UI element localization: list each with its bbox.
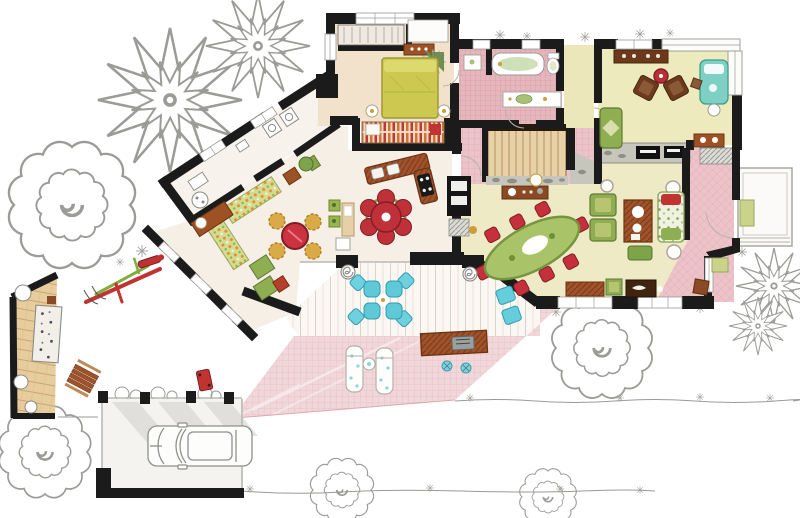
toy-plane [134, 249, 167, 274]
pedestal-table [667, 245, 681, 259]
poinsettia-tree [206, 0, 310, 98]
cloud-tree [9, 142, 135, 268]
garage [96, 391, 258, 498]
patio-table [386, 303, 402, 319]
toy-cart [196, 369, 213, 391]
planter [25, 401, 37, 413]
gold-chair [305, 243, 321, 259]
cloud-tree [0, 406, 91, 497]
toilet [547, 53, 559, 74]
patio-table [364, 303, 380, 319]
deck-bench [32, 305, 62, 363]
round-table [192, 192, 208, 208]
ground-line [242, 490, 655, 493]
pedestal-table [530, 174, 542, 186]
green-throw [661, 228, 681, 240]
gold-chair [269, 213, 285, 229]
car [148, 423, 252, 469]
cabinet [336, 238, 350, 250]
deck-box [47, 296, 56, 304]
bed [382, 58, 438, 118]
green-armchair [590, 219, 616, 241]
entry-porch [738, 168, 792, 246]
vanity [503, 92, 561, 107]
floral-sofa [658, 192, 684, 242]
side-table [708, 104, 720, 116]
cloud-tree [520, 469, 577, 518]
patio-table [386, 281, 402, 297]
alcove-shelf [408, 20, 448, 42]
brown-chair [693, 279, 709, 295]
study-green-sofa [600, 108, 622, 148]
floor-plan-canvas [0, 0, 800, 518]
ground-line [455, 400, 800, 403]
cloud-tree [310, 458, 373, 518]
teal-daybed [700, 60, 728, 104]
bench [566, 282, 604, 296]
ottoman [628, 246, 652, 260]
closet [338, 25, 404, 45]
planter [14, 375, 28, 389]
patio-table [364, 281, 380, 297]
lamp [196, 218, 207, 229]
door-mat [740, 200, 754, 226]
planter [15, 285, 31, 301]
picnic-table [64, 359, 101, 398]
green-armchair [590, 194, 616, 216]
hall-mat [712, 258, 728, 272]
pedestal-table [601, 180, 613, 192]
coffee-table [624, 200, 652, 242]
red-pillow [661, 194, 681, 205]
potted-plant [299, 157, 313, 171]
desk [694, 134, 724, 147]
cloud-tree [552, 298, 652, 398]
spiral-column [463, 267, 477, 281]
wardrobe-box [430, 124, 441, 135]
spiral-column [341, 265, 355, 279]
bathtub [492, 53, 544, 75]
gold-chair [269, 243, 285, 259]
floor-plan-illustration [0, 0, 800, 518]
yellow-hall-floor [564, 45, 594, 129]
gold-chair [305, 214, 321, 230]
bar-table [420, 330, 487, 355]
